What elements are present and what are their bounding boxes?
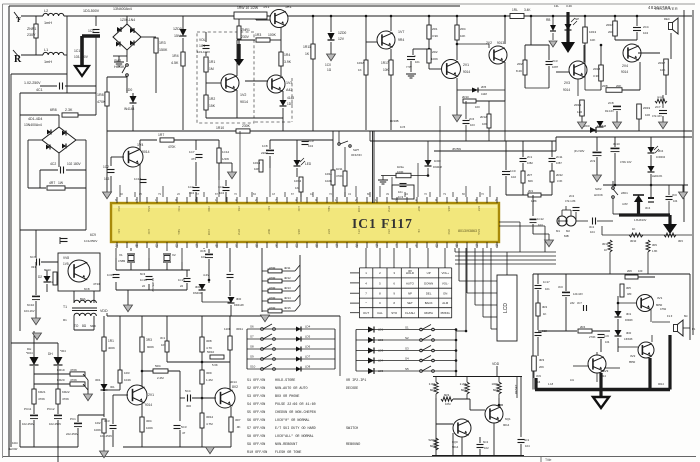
svg-text:LD6: LD6 <box>305 345 311 349</box>
svg-text:10K: 10K <box>660 68 665 72</box>
svg-text:Title: Title <box>545 458 552 462</box>
svg-text:1C0: 1C0 <box>325 63 331 67</box>
svg-text:220U: 220U <box>261 151 268 155</box>
svg-text:LED: LED <box>305 162 312 166</box>
svg-text:3D1: 3D1 <box>95 378 101 382</box>
svg-text:LED10%: LED10% <box>652 174 663 178</box>
svg-text:120-16V: 120-16V <box>573 292 583 296</box>
svg-text:472-16V: 472-16V <box>652 114 662 118</box>
svg-text:100K: 100K <box>146 426 153 430</box>
svg-text:101: 101 <box>545 287 550 291</box>
svg-text:470K: 470K <box>269 306 276 310</box>
svg-text:1C12: 1C12 <box>222 150 230 154</box>
svg-text:3R11: 3R11 <box>602 242 609 246</box>
svg-text:3R7: 3R7 <box>235 418 241 422</box>
svg-text:5C3: 5C3 <box>181 425 187 429</box>
svg-text:4R13: 4R13 <box>284 286 291 290</box>
svg-text:1R8: 1R8 <box>97 93 104 97</box>
svg-text:6C7: 6C7 <box>30 255 36 259</box>
svg-text:DR4148: DR4148 <box>234 303 244 307</box>
svg-text:3C2: 3C2 <box>589 225 595 229</box>
svg-text:13: 13 <box>175 244 179 248</box>
svg-text:15V: 15V <box>174 34 181 38</box>
svg-text:*004: *004 <box>60 349 66 353</box>
svg-text:LD7: LD7 <box>305 355 311 359</box>
svg-text:10K: 10K <box>254 167 259 171</box>
svg-text:1R11: 1R11 <box>325 172 332 176</box>
svg-text:TO: TO <box>74 324 79 328</box>
svg-text:1.18: 1.18 <box>548 382 554 386</box>
svg-text:DN4048: DN4048 <box>433 166 442 169</box>
svg-text:1W: 1W <box>58 181 64 185</box>
svg-text:1C15: 1C15 <box>178 278 185 282</box>
svg-text:20: 20 <box>115 244 119 248</box>
svg-text:3.0M: 3.0M <box>429 382 436 386</box>
svg-text:470K: 470K <box>70 368 77 372</box>
svg-text:RST: RST <box>327 229 331 235</box>
svg-text:3C1: 3C1 <box>160 336 166 340</box>
svg-text:104: 104 <box>605 340 610 344</box>
svg-text:LCD: LCD <box>147 229 151 234</box>
svg-text:ON: ON <box>443 291 447 295</box>
svg-text:6C10: 6C10 <box>27 303 35 307</box>
svg-text:1R7: 1R7 <box>158 133 164 137</box>
svg-text:82K: 82K <box>528 179 533 183</box>
svg-text:13N648: 13N648 <box>624 338 633 341</box>
svg-text:3R5: 3R5 <box>626 286 631 290</box>
svg-text:2R12: 2R12 <box>480 115 487 119</box>
svg-text:S1: S1 <box>405 326 409 330</box>
svg-text:VV8: VV8 <box>63 256 69 260</box>
svg-text:8Ω: 8Ω <box>684 314 687 318</box>
svg-text:1R1: 1R1 <box>108 339 114 343</box>
svg-text:4R15: 4R15 <box>284 306 291 310</box>
svg-text:3.3K: 3.3K <box>593 74 599 78</box>
svg-text:3C8: 3C8 <box>200 249 206 253</box>
svg-text:470K: 470K <box>38 397 45 401</box>
svg-text:KR20: KR20 <box>57 378 65 382</box>
svg-text:LD5: LD5 <box>305 335 311 339</box>
svg-text:900K: 900K <box>147 345 154 349</box>
svg-text:LCD: LCD <box>503 303 509 313</box>
svg-text:LD4: LD4 <box>305 325 311 329</box>
svg-text:9014: 9014 <box>240 100 248 104</box>
svg-text:2V3: 2V3 <box>564 81 570 85</box>
svg-text:6R3: 6R3 <box>444 393 450 397</box>
svg-text:ID1: ID1 <box>110 385 115 389</box>
svg-text:MUT: MUT <box>417 206 421 212</box>
svg-text:PC11: PC11 <box>24 407 32 411</box>
svg-text:70: 70 <box>475 244 479 248</box>
svg-text:XT2: XT2 <box>387 229 391 234</box>
svg-text:10K: 10K <box>590 38 595 42</box>
svg-text:47: 47 <box>182 431 186 435</box>
svg-text:6C8: 6C8 <box>84 287 90 291</box>
svg-text:6C2: 6C2 <box>483 440 489 444</box>
svg-text:4.2V: 4.2V <box>203 273 209 277</box>
svg-text:S4: S4 <box>405 357 409 361</box>
svg-text:8550: 8550 <box>629 360 636 364</box>
svg-text:S2 OFF/ON: S2 OFF/ON <box>247 386 265 391</box>
svg-text:DECODE: DECODE <box>346 387 358 391</box>
svg-text:L2: L2 <box>44 9 48 13</box>
svg-text:104: 104 <box>643 31 648 35</box>
svg-text:LD3: LD3 <box>378 349 384 353</box>
svg-text:OFF/ON: OFF/ON <box>351 153 362 157</box>
svg-text:UP: UP <box>427 271 431 275</box>
svg-text:2R1: 2R1 <box>432 27 438 31</box>
svg-text:104: 104 <box>673 199 678 203</box>
svg-text:230K: 230K <box>242 124 251 128</box>
svg-text:OUT: OUT <box>363 311 369 315</box>
svg-text:1C7: 1C7 <box>189 150 195 154</box>
svg-text:R10 OFF/ON: R10 OFF/ON <box>247 450 267 455</box>
svg-text:103-16V: 103-16V <box>24 309 35 313</box>
svg-text:3.4K: 3.4K <box>524 8 531 12</box>
svg-text:X2: X2 <box>172 253 176 257</box>
svg-text:1R4: 1R4 <box>172 54 179 58</box>
svg-text:55: 55 <box>315 244 319 248</box>
svg-text:M1: M1 <box>556 229 560 233</box>
svg-text:100: 100 <box>638 269 643 273</box>
svg-text:CAL: CAL <box>377 311 383 315</box>
svg-text:3V1: 3V1 <box>657 296 663 300</box>
svg-text:9014: 9014 <box>145 403 152 407</box>
svg-text:SEG: SEG <box>327 206 331 211</box>
svg-text:6R8: 6R8 <box>50 108 57 112</box>
svg-text:73: 73 <box>335 244 339 248</box>
svg-text:1RL: 1RL <box>512 8 518 12</box>
svg-text:2R7: 2R7 <box>527 173 533 177</box>
svg-text:84: 84 <box>135 244 139 248</box>
svg-text:4733: 4733 <box>93 282 100 286</box>
svg-text:B0A: B0A <box>80 297 86 301</box>
svg-text:9014: 9014 <box>658 382 664 386</box>
svg-text:2V1: 2V1 <box>148 393 154 397</box>
svg-text:8013/93863: 8013/93863 <box>458 229 477 233</box>
svg-text:1Z00-1N4: 1Z00-1N4 <box>120 18 135 22</box>
svg-text:1mH: 1mH <box>44 60 52 64</box>
svg-text:10M: 10M <box>445 402 451 406</box>
svg-text:470K: 470K <box>269 266 276 270</box>
svg-text:1V2: 1V2 <box>240 93 246 97</box>
svg-text:S7 OFF/ON: S7 OFF/ON <box>247 426 265 431</box>
svg-text:100K: 100K <box>268 33 277 37</box>
svg-text:SEG: SEG <box>177 229 181 234</box>
svg-text:6C9: 6C9 <box>90 233 96 237</box>
svg-text:103: 103 <box>470 123 475 127</box>
svg-text:2C6: 2C6 <box>469 117 475 121</box>
svg-text:1D0: 1D0 <box>126 88 132 92</box>
svg-text:3.58M: 3.58M <box>118 259 125 263</box>
svg-text:3R4: 3R4 <box>146 419 152 423</box>
svg-text:1.8K: 1.8K <box>531 199 537 203</box>
svg-text:1R1: 1R1 <box>209 60 215 64</box>
svg-text:9014: 9014 <box>230 380 237 384</box>
svg-text:2.2M: 2.2M <box>157 376 164 380</box>
svg-text:1C16: 1C16 <box>140 278 147 282</box>
svg-text:CHEDUN OR NON-CHEPEN: CHEDUN OR NON-CHEPEN <box>275 411 316 415</box>
svg-text:18: 18 <box>435 244 439 248</box>
svg-text:2C8: 2C8 <box>608 101 614 105</box>
svg-text:VOL-: VOL- <box>442 281 449 285</box>
svg-text:100: 100 <box>475 105 480 109</box>
svg-text:S2: S2 <box>405 336 409 340</box>
svg-text:T1: T1 <box>63 305 67 309</box>
svg-text:S3: S3 <box>405 347 409 351</box>
svg-text:D2: D2 <box>38 275 42 279</box>
svg-text:LD2: LD2 <box>378 338 384 342</box>
svg-text:103: 103 <box>104 177 110 181</box>
svg-text:3V3: 3V3 <box>603 369 609 373</box>
svg-text:1R11: 1R11 <box>303 45 311 49</box>
svg-text:8.2K: 8.2K <box>516 69 522 73</box>
svg-text:5R4: 5R4 <box>155 364 161 368</box>
svg-text:1.02-250V: 1.02-250V <box>24 81 41 85</box>
svg-text:5C4: 5C4 <box>185 389 191 393</box>
svg-text:LD8: LD8 <box>305 365 311 369</box>
svg-text:KR19: KR19 <box>57 368 65 372</box>
svg-text:22: 22 <box>180 284 184 288</box>
svg-text:3.4K: 3.4K <box>566 4 572 8</box>
svg-text:13N400Ax4: 13N400Ax4 <box>24 123 42 127</box>
svg-text:2D4: 2D4 <box>658 149 664 153</box>
svg-text:BOX OR PHONE: BOX OR PHONE <box>275 395 299 399</box>
svg-text:13N648: 13N648 <box>597 124 607 128</box>
svg-text:S5 OFF/ON: S5 OFF/ON <box>247 410 265 415</box>
svg-text:1K: 1K <box>295 186 299 190</box>
svg-text:IP2: IP2 <box>408 269 412 273</box>
svg-text:1C6: 1C6 <box>604 334 609 338</box>
svg-text:10K: 10K <box>383 68 390 72</box>
svg-text:HOLD-STORE: HOLD-STORE <box>275 379 295 383</box>
svg-text:1V3: 1V3 <box>286 81 292 85</box>
svg-text:1C04: 1C04 <box>107 273 114 277</box>
svg-text:472-1.8K: 472-1.8K <box>565 199 576 203</box>
svg-text:1C5: 1C5 <box>400 125 406 129</box>
svg-text:S5: S5 <box>405 367 409 371</box>
svg-text:NP: NP <box>575 17 579 21</box>
svg-text:RESET: RESET <box>514 384 518 394</box>
svg-text:1R2a: 1R2a <box>397 165 404 169</box>
svg-text:6R2: 6R2 <box>430 444 436 448</box>
svg-text:54: 54 <box>455 244 459 248</box>
svg-text:100K: 100K <box>397 170 404 174</box>
svg-text:NON-REBOUNT: NON-REBOUNT <box>275 443 297 447</box>
svg-text:1R2: 1R2 <box>209 97 215 101</box>
svg-text:8050: 8050 <box>656 303 663 307</box>
svg-text:10K: 10K <box>482 122 487 126</box>
svg-text:1K: 1K <box>632 227 636 231</box>
svg-text:3D0: 3D0 <box>236 297 242 301</box>
svg-text:CE: CE <box>417 229 421 233</box>
svg-text:DEL: DEL <box>426 291 432 295</box>
svg-text:470K: 470K <box>168 145 176 149</box>
svg-text:3.9K: 3.9K <box>284 60 292 64</box>
svg-text:3C3: 3C3 <box>104 419 110 423</box>
svg-text:470U 10V: 470U 10V <box>620 160 632 164</box>
svg-text:3R3: 3R3 <box>678 239 683 243</box>
svg-text:1M: 1M <box>209 67 214 71</box>
svg-text:LD5: LD5 <box>378 369 384 373</box>
svg-text:RNG: RNG <box>147 206 151 212</box>
svg-text:1.2M: 1.2M <box>206 378 213 382</box>
svg-text:4C2: 4C2 <box>50 162 56 166</box>
svg-text:AUTO: AUTO <box>406 281 415 285</box>
svg-text:DN4048: DN4048 <box>193 291 203 295</box>
svg-text:4148: 4148 <box>287 96 294 100</box>
svg-text:1N0004: 1N0004 <box>656 155 666 159</box>
svg-text:3R2: 3R2 <box>542 305 548 309</box>
svg-text:COM: COM <box>357 206 361 212</box>
svg-text:mmm: mmm <box>657 96 663 99</box>
svg-text:102K: 102K <box>325 179 332 183</box>
svg-text:M2: M2 <box>566 229 570 233</box>
svg-text:4R12: 4R12 <box>284 276 291 280</box>
svg-text:102: 102 <box>484 446 489 450</box>
svg-text:DH: DH <box>27 347 31 351</box>
svg-text:1.8UZ/10V: 1.8UZ/10V <box>634 218 647 222</box>
svg-text:1Ω: 1Ω <box>327 68 332 72</box>
svg-text:KIN: KIN <box>117 229 121 233</box>
svg-text:COM: COM <box>207 229 211 235</box>
svg-text:2R2: 2R2 <box>517 62 523 66</box>
svg-text:1D3-500V: 1D3-500V <box>83 9 100 13</box>
svg-text:S9 OFF/ON: S9 OFF/ON <box>247 442 265 447</box>
svg-text:3R9: 3R9 <box>206 371 212 375</box>
svg-text:104: 104 <box>308 144 313 148</box>
svg-text:2.2M: 2.2M <box>460 382 467 386</box>
svg-text:1C17: 1C17 <box>543 280 550 284</box>
svg-text:1C0: 1C0 <box>88 29 94 33</box>
svg-text:104K: 104K <box>124 378 131 382</box>
svg-text:470K: 470K <box>97 100 106 104</box>
svg-text:RNG: RNG <box>477 229 481 235</box>
svg-text:.9K: .9K <box>236 425 241 429</box>
svg-text:S6: S6 <box>250 325 254 329</box>
svg-text:4.7M: 4.7M <box>206 422 213 426</box>
svg-text:HKS: HKS <box>297 229 301 235</box>
svg-text:3C4: 3C4 <box>645 206 651 210</box>
svg-text:2V4: 2V4 <box>622 64 628 68</box>
svg-text:6R2: 6R2 <box>461 388 467 392</box>
svg-text:KR21: KR21 <box>38 390 46 394</box>
svg-text:DTM: DTM <box>387 206 391 212</box>
svg-text:NON-AUTO OR AUTO: NON-AUTO OR AUTO <box>275 387 308 391</box>
svg-text:MUT: MUT <box>267 229 271 235</box>
svg-text:VSS: VSS <box>237 206 241 211</box>
svg-text:100K: 100K <box>94 428 101 432</box>
svg-text:2R22: 2R22 <box>556 173 563 177</box>
svg-text:1K: 1K <box>305 52 310 56</box>
svg-text:3C0: 3C0 <box>558 285 563 289</box>
svg-text:2R2: 2R2 <box>432 50 438 54</box>
svg-text:103: 103 <box>161 343 166 347</box>
svg-text:1R3: 1R3 <box>255 33 261 37</box>
svg-text:RST: RST <box>477 206 481 212</box>
svg-text:1C8: 1C8 <box>262 144 268 148</box>
svg-text:473: 473 <box>191 157 196 161</box>
svg-text:331: 331 <box>31 265 36 269</box>
svg-text:104: 104 <box>219 191 224 195</box>
svg-text:470K: 470K <box>269 276 276 280</box>
svg-text:2D5: 2D5 <box>481 85 487 89</box>
svg-text:L1: L1 <box>44 48 48 52</box>
svg-text:0.5W: 0.5W <box>660 307 667 311</box>
svg-text:2C9: 2C9 <box>590 159 596 163</box>
svg-text:RD/PA: RD/PA <box>424 311 433 315</box>
svg-text:RECEIVER: RECEIVER <box>655 7 678 11</box>
svg-text:1C1/250V: 1C1/250V <box>84 239 97 243</box>
svg-text:9014: 9014 <box>503 423 510 427</box>
svg-text:R1: R1 <box>63 318 67 322</box>
svg-text:22: 22 <box>142 284 146 288</box>
svg-text:4R11: 4R11 <box>284 266 291 270</box>
svg-text:PRING: PRING <box>441 311 451 315</box>
svg-text:6R1: 6R1 <box>430 388 436 392</box>
svg-text:1/2W: 1/2W <box>222 157 229 161</box>
svg-text:S4 OFF/ON: S4 OFF/ON <box>247 402 265 407</box>
svg-text:56: 56 <box>255 244 259 248</box>
svg-text:2C1: 2C1 <box>527 155 533 159</box>
svg-text:BACK: BACK <box>425 301 433 305</box>
svg-text:100: 100 <box>645 113 650 117</box>
svg-text:5R10: 5R10 <box>207 350 215 354</box>
svg-text:ALM: ALM <box>442 301 449 305</box>
svg-text:REBOUND: REBOUND <box>346 443 360 447</box>
svg-text:RB: RB <box>546 18 550 22</box>
svg-text:S7: S7 <box>250 335 254 339</box>
svg-text:1D0: 1D0 <box>287 102 293 106</box>
svg-text:1ZD0: 1ZD0 <box>173 27 182 31</box>
svg-text:3C0: 3C0 <box>672 193 677 197</box>
svg-text:470K: 470K <box>62 397 69 401</box>
svg-text:1K: 1K <box>668 228 671 232</box>
svg-text:REC: REC <box>664 17 670 21</box>
svg-text:1V7: 1V7 <box>398 30 404 34</box>
svg-text:3.3K: 3.3K <box>557 179 563 183</box>
svg-text:2.3K: 2.3K <box>65 108 73 112</box>
svg-text:10n: 10n <box>398 190 403 194</box>
svg-text:2C7: 2C7 <box>655 105 661 109</box>
svg-text:NP: NP <box>408 291 412 295</box>
svg-text:S9: S9 <box>250 355 254 359</box>
svg-text:A: A <box>414 54 416 58</box>
svg-text:10: 10 <box>155 244 159 248</box>
svg-text:100K: 100K <box>431 57 438 61</box>
svg-text:ZNR1: ZNR1 <box>241 28 250 32</box>
svg-text:1V1: 1V1 <box>263 5 269 9</box>
svg-text:101: 101 <box>570 379 575 382</box>
svg-text:4.5K: 4.5K <box>171 61 179 65</box>
svg-text:HOOK: HOOK <box>114 65 125 69</box>
svg-text:LOCK"0" OR NORMAL: LOCK"0" OR NORMAL <box>275 418 310 423</box>
svg-text:3R12: 3R12 <box>206 415 214 419</box>
svg-text:4148: 4148 <box>481 92 487 96</box>
svg-text:R2 388CR2: R2 388CR2 <box>151 278 155 292</box>
svg-text:1087: 1087 <box>552 65 559 69</box>
svg-text:2C3: 2C3 <box>552 59 558 63</box>
svg-text:(FU 90V: (FU 90V <box>574 149 585 153</box>
svg-text:1087: 1087 <box>556 161 562 165</box>
svg-text:12V: 12V <box>338 37 345 41</box>
svg-text:470K: 470K <box>336 174 343 178</box>
svg-text:2R4: 2R4 <box>460 27 466 31</box>
svg-text:KIN: KIN <box>267 206 271 210</box>
svg-text:2R16: 2R16 <box>606 23 614 27</box>
svg-text:2C4: 2C4 <box>643 25 649 29</box>
svg-text:8Ω: 8Ω <box>82 324 87 328</box>
